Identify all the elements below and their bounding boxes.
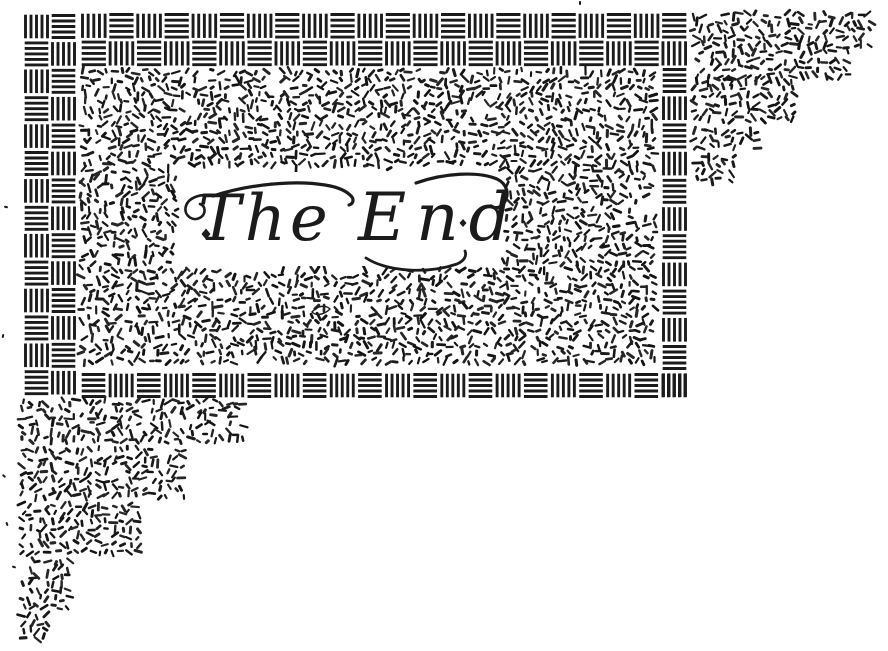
illustration-page: The End bbox=[0, 0, 888, 651]
word-the: The bbox=[198, 182, 332, 256]
word-end: End bbox=[357, 179, 521, 256]
confetti-texture bbox=[16, 8, 877, 644]
the-end-illustration: The End bbox=[0, 0, 888, 651]
